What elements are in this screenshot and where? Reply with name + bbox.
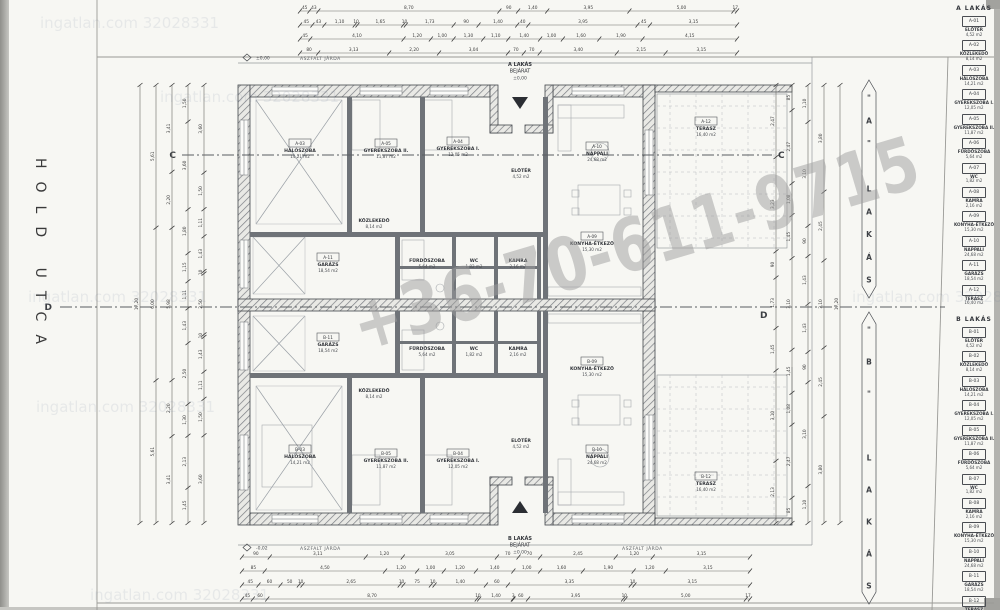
room-code-box: A-01: [962, 16, 986, 27]
room-code-box: B-04: [962, 400, 986, 411]
svg-text:1,40: 1,40: [490, 565, 500, 571]
svg-text:2,45: 2,45: [818, 377, 824, 387]
svg-text:24,68 m2: 24,68 m2: [587, 157, 607, 162]
svg-text:ELŐTÉR: ELŐTÉR: [511, 166, 531, 174]
schedule-item: B-09 KONYHA-ÉTKEZŐ 15,30 m2: [950, 522, 998, 543]
svg-text:4,50: 4,50: [320, 565, 330, 571]
svg-text:1,90: 1,90: [616, 33, 626, 39]
room-code-box: A-10: [962, 236, 986, 247]
entrance-b-label-2: BEJÁRAT: [510, 542, 532, 549]
svg-text:1,40: 1,40: [519, 33, 529, 39]
svg-text:14,21 m2: 14,21 m2: [290, 154, 310, 159]
room-code: A-04: [969, 92, 979, 97]
svg-text:B: B: [866, 358, 872, 367]
svg-text:1,40: 1,40: [528, 5, 538, 11]
svg-text:16,40 m2: 16,40 m2: [696, 132, 716, 137]
svg-text:B-10: B-10: [592, 447, 602, 452]
blueprint-page: C C D D A LAKÁS BEJÁRAT ±0,00 B LAKÁS BE…: [0, 0, 1000, 610]
sidewalk-note-top: ASZFALT JÁRDA: [300, 55, 341, 62]
schedule-item: B-03 HÁLÓSZOBA 14,21 m2: [950, 376, 998, 397]
svg-text:A-04: A-04: [453, 139, 463, 144]
schedule-item: B-11 GARÁZS 18,54 m2: [950, 571, 998, 592]
svg-text:1,10: 1,10: [491, 33, 501, 39]
room-code: A-03: [969, 68, 979, 73]
svg-text:12,05 m2: 12,05 m2: [448, 464, 468, 469]
watermark-site-1: ingatlan.com 32028331: [40, 14, 219, 32]
schedule-item: B-01 ELŐTÉR 4,52 m2: [950, 327, 998, 348]
room-label: KÖZLEKEDŐ8,14 m2: [358, 217, 389, 229]
svg-text:70: 70: [529, 47, 535, 53]
room-area: 5,64 m2: [950, 466, 998, 471]
room-area: 12,05 m2: [950, 417, 998, 422]
svg-text:HÁLÓSZOBA: HÁLÓSZOBA: [284, 453, 316, 460]
svg-text:1,10: 1,10: [802, 500, 808, 510]
room-area: 24,68 m2: [950, 253, 998, 258]
room-label: A-03HÁLÓSZOBA14,21 m2: [284, 139, 316, 159]
svg-text:": ": [867, 390, 871, 399]
room-area: 15,30 m2: [950, 228, 998, 233]
schedule-item: A-10 NAPPALI 24,68 m2: [950, 236, 998, 257]
svg-text:2,45: 2,45: [573, 551, 583, 557]
svg-text:3,10: 3,10: [770, 411, 776, 421]
svg-text:B-09: B-09: [587, 359, 597, 364]
svg-text:16,40 m2: 16,40 m2: [696, 487, 716, 492]
schedule-item: A-02 KÖZLEKEDŐ 8,14 m2: [950, 40, 998, 61]
svg-text:B-05: B-05: [381, 451, 391, 456]
svg-text:3,95: 3,95: [584, 5, 594, 11]
svg-text:B-04: B-04: [453, 451, 463, 456]
room-code-box: A-04: [962, 89, 986, 100]
schedule-list-a: A-01 ELŐTÉR 4,52 m2 A-02 KÖZLEKEDŐ 8,14 …: [950, 16, 998, 309]
svg-text:1,08: 1,08: [786, 404, 792, 414]
svg-text:1,00: 1,00: [522, 565, 532, 571]
room-area: 18,54 m2: [950, 588, 998, 593]
sidewalk-note-bottom-left: ASZFALT JÁRDA: [300, 545, 341, 552]
svg-text:1,15: 1,15: [182, 262, 188, 272]
schedule-item: B-10 NAPPALI 24,68 m2: [950, 547, 998, 568]
room-label: B-11GARÁZS18,54 m2: [317, 333, 339, 353]
svg-text:3,04: 3,04: [469, 47, 479, 53]
svg-text:2,20: 2,20: [409, 47, 419, 53]
svg-text:45: 45: [303, 19, 309, 25]
entrance-a-label-1: A LAKÁS: [508, 61, 532, 68]
svg-text:1,11: 1,11: [198, 218, 204, 228]
svg-text:1,20: 1,20: [455, 565, 465, 571]
room-code-box: A-07: [962, 163, 986, 174]
svg-text:3,11: 3,11: [313, 551, 323, 557]
svg-text:85: 85: [786, 95, 792, 101]
room-code: A-06: [969, 141, 979, 146]
svg-text:90: 90: [802, 364, 808, 370]
svg-text:1,20: 1,20: [629, 551, 639, 557]
svg-text:11,87 m2: 11,87 m2: [376, 464, 396, 469]
svg-text:1,43: 1,43: [182, 321, 188, 331]
svg-text:45: 45: [302, 5, 308, 11]
schedule-item: B-07 WC 1,82 m2: [950, 474, 998, 495]
room-label: B-05GYEREKSZOBA II.11,87 m2: [364, 449, 409, 469]
svg-text:A-05: A-05: [381, 141, 391, 146]
room-code-box: B-07: [962, 474, 986, 485]
svg-text:B-12: B-12: [701, 474, 711, 479]
room-area: 4,52 m2: [950, 33, 998, 38]
watermark-site-5: ingatlan.com 32028331: [36, 398, 215, 416]
room-code: A-01: [969, 19, 979, 24]
svg-text:S: S: [866, 276, 871, 285]
room-label: ELŐTÉR4,52 m2: [511, 436, 531, 449]
svg-text:3,60: 3,60: [182, 160, 188, 170]
svg-text:1,60: 1,60: [557, 565, 567, 571]
room-area: 24,68 m2: [950, 564, 998, 569]
svg-text:17: 17: [732, 5, 738, 11]
svg-text:S: S: [866, 582, 871, 591]
room-area: 18,54 m2: [950, 277, 998, 282]
svg-text:2,47: 2,47: [786, 456, 792, 466]
svg-text:K: K: [866, 230, 873, 239]
svg-text:10: 10: [198, 333, 204, 339]
svg-text:90: 90: [506, 5, 512, 11]
schedule-item: B-04 GYEREKSZOBA I. 12,05 m2: [950, 400, 998, 421]
schedule-item: A-01 ELŐTÉR 4,52 m2: [950, 16, 998, 37]
room-code: B-12: [969, 599, 979, 604]
svg-text:5,00: 5,00: [681, 593, 691, 599]
room-label: B-04GYEREKSZOBA I.12,05 m2: [436, 449, 479, 469]
svg-text:A: A: [866, 486, 872, 495]
room-code: A-02: [969, 43, 979, 48]
svg-text:2,65: 2,65: [346, 579, 356, 585]
room-code-box: B-09: [962, 522, 986, 533]
svg-text:2,15: 2,15: [636, 47, 646, 53]
schedule-list-b: B-01 ELŐTÉR 4,52 m2 B-02 KÖZLEKEDŐ 8,14 …: [950, 327, 998, 610]
svg-text:14,21 m2: 14,21 m2: [290, 460, 310, 465]
svg-text:3,80: 3,80: [818, 133, 824, 143]
svg-text:1,10: 1,10: [335, 19, 345, 25]
svg-text:45: 45: [302, 33, 308, 39]
svg-text:3,60: 3,60: [198, 124, 204, 134]
svg-text:40: 40: [520, 19, 526, 25]
svg-text:85: 85: [786, 507, 792, 513]
entrance-b-label-1: B LAKÁS: [508, 535, 532, 542]
watermark-site-4: ingatlan.com 32028331: [852, 288, 1000, 306]
svg-text:8,14 m2: 8,14 m2: [365, 394, 382, 399]
schedule-item: A-11 GARÁZS 18,54 m2: [950, 260, 998, 281]
svg-text:10: 10: [353, 19, 359, 25]
schedule-title-b: B LAKÁS: [950, 316, 998, 323]
svg-text:3,15: 3,15: [697, 551, 707, 557]
svg-text:L: L: [867, 454, 872, 463]
svg-text:3,10: 3,10: [786, 299, 792, 309]
schedule-item: B-08 KAMRA 2,16 m2: [950, 498, 998, 519]
room-code-box: B-01: [962, 327, 986, 338]
entrance-a-label-2: BEJÁRAT: [510, 68, 532, 75]
svg-text:5,64 m2: 5,64 m2: [418, 352, 435, 357]
svg-text:85: 85: [251, 565, 257, 571]
svg-text:3,40: 3,40: [573, 47, 583, 53]
svg-text:60: 60: [494, 579, 500, 585]
room-code: A-10: [969, 239, 979, 244]
svg-text:17,20: 17,20: [834, 298, 840, 311]
room-code: B-01: [969, 330, 979, 335]
room-area: 14,21 m2: [950, 82, 998, 87]
room-label: KAMRA2,16 m2: [509, 346, 528, 357]
svg-text:3,13: 3,13: [349, 47, 359, 53]
room-code: B-07: [969, 477, 979, 482]
room-area: 1,82 m2: [950, 179, 998, 184]
svg-text:1,40: 1,40: [493, 19, 503, 25]
room-code: B-05: [969, 428, 979, 433]
svg-text:A-11: A-11: [323, 255, 333, 260]
svg-text:3,15: 3,15: [689, 19, 699, 25]
svg-text:1,80: 1,80: [182, 226, 188, 236]
svg-text:2,13: 2,13: [770, 487, 776, 497]
svg-text:8,70: 8,70: [404, 5, 414, 11]
room-code: A-08: [969, 190, 979, 195]
room-code: B-04: [969, 403, 979, 408]
room-label: WC1,82 m2: [465, 346, 482, 357]
svg-text:70: 70: [527, 551, 533, 557]
svg-text:KÖZLEKEDŐ: KÖZLEKEDŐ: [358, 217, 389, 224]
svg-text:3,15: 3,15: [687, 579, 697, 585]
room-code: B-02: [969, 354, 979, 359]
svg-text:B-03: B-03: [295, 447, 305, 452]
watermark-site-2: ingatlan.com 32028331: [160, 88, 339, 106]
room-code-box: B-10: [962, 547, 986, 558]
schedule-item: B-12 TERASZ 16,40 m2: [950, 596, 998, 610]
section-marker-d-right: D: [760, 311, 767, 321]
svg-text:60: 60: [518, 593, 524, 599]
svg-text:1,73: 1,73: [425, 19, 435, 25]
svg-text:11,87 m2: 11,87 m2: [376, 154, 396, 159]
room-code: B-09: [969, 525, 979, 530]
svg-text:3: 3: [512, 593, 515, 599]
svg-text:A-03: A-03: [295, 141, 305, 146]
svg-text:1,20: 1,20: [645, 565, 655, 571]
room-code: B-11: [969, 574, 979, 579]
svg-text:3,95: 3,95: [571, 593, 581, 599]
room-label: KÖZLEKEDŐ8,14 m2: [358, 387, 389, 399]
svg-text:1,45: 1,45: [182, 500, 188, 510]
svg-text:8,70: 8,70: [367, 593, 377, 599]
room-code-box: B-06: [962, 449, 986, 460]
svg-text:18,54 m2: 18,54 m2: [318, 268, 338, 273]
room-code-box: A-06: [962, 138, 986, 149]
room-label: A-12TERASZ16,40 m2: [695, 117, 717, 137]
svg-text:2,20: 2,20: [166, 195, 172, 205]
svg-text:3,15: 3,15: [696, 47, 706, 53]
room-code: A-11: [969, 263, 979, 268]
room-code-box: B-12: [962, 596, 986, 607]
svg-text:3,10: 3,10: [818, 299, 824, 309]
svg-text:75: 75: [414, 579, 420, 585]
room-code-box: B-05: [962, 425, 986, 436]
level-value-bottom: -0,02: [256, 546, 268, 552]
svg-text:8,14 m2: 8,14 m2: [365, 224, 382, 229]
room-code-box: B-08: [962, 498, 986, 509]
room-code-box: B-11: [962, 571, 986, 582]
schedule-item: A-07 WC 1,82 m2: [950, 163, 998, 184]
room-label: A-05GYEREKSZOBA II.11,87 m2: [364, 139, 409, 159]
schedule-item: A-05 GYEREKSZOBA II. 11,87 m2: [950, 114, 998, 135]
svg-text:B-11: B-11: [323, 335, 333, 340]
room-code-box: A-09: [962, 211, 986, 222]
schedule-item: A-04 GYEREKSZOBA I. 12,05 m2: [950, 89, 998, 110]
svg-text:A-10: A-10: [592, 144, 602, 149]
svg-text:Á: Á: [866, 253, 872, 262]
svg-text:3,60: 3,60: [198, 474, 204, 484]
room-area: 12,05 m2: [950, 106, 998, 111]
room-label: A-04GYEREKSZOBA I.12,05 m2: [436, 137, 479, 157]
svg-text:1,45: 1,45: [770, 344, 776, 354]
svg-text:3,10: 3,10: [802, 429, 808, 439]
room-code-box: A-03: [962, 65, 986, 76]
room-code-box: A-11: [962, 260, 986, 271]
entrance-arrow-b: [512, 501, 528, 513]
room-code: B-06: [969, 452, 979, 457]
room-code-box: B-03: [962, 376, 986, 387]
level-marker-top: [243, 54, 251, 61]
room-label: A-10NAPPALI24,68 m2: [586, 142, 608, 162]
room-code-box: A-05: [962, 114, 986, 125]
svg-text:2,47: 2,47: [770, 116, 776, 126]
svg-text:1,43: 1,43: [802, 275, 808, 285]
svg-text:1,60: 1,60: [576, 33, 586, 39]
svg-text:HÁLÓSZOBA: HÁLÓSZOBA: [284, 147, 316, 154]
room-area: 14,21 m2: [950, 393, 998, 398]
room-code: A-09: [969, 214, 979, 219]
svg-text:2,47: 2,47: [786, 142, 792, 152]
svg-text:10: 10: [622, 593, 628, 599]
svg-text:10: 10: [430, 579, 436, 585]
svg-text:4,15: 4,15: [685, 33, 695, 39]
svg-text:18,54 m2: 18,54 m2: [318, 348, 338, 353]
svg-text:10: 10: [399, 579, 405, 585]
room-label: B-09KONYHA-ÉTKEZŐ15,30 m2: [570, 357, 614, 377]
svg-text:1,20: 1,20: [379, 551, 389, 557]
room-area: 2,16 m2: [950, 515, 998, 520]
svg-text:3,41: 3,41: [166, 475, 172, 485]
svg-text:A-12: A-12: [701, 119, 711, 124]
room-code: B-10: [969, 550, 979, 555]
svg-text:4,52 m2: 4,52 m2: [512, 444, 529, 449]
svg-text:70: 70: [513, 47, 519, 53]
svg-text:2,16 m2: 2,16 m2: [509, 352, 526, 357]
room-code-box: B-02: [962, 351, 986, 362]
schedule-item: B-05 GYEREKSZOBA II. 11,87 m2: [950, 425, 998, 446]
svg-text:1,40: 1,40: [455, 579, 465, 585]
schedule-item: A-09 KONYHA-ÉTKEZŐ 15,30 m2: [950, 211, 998, 232]
svg-text:90: 90: [463, 19, 469, 25]
svg-text:": ": [867, 326, 871, 335]
svg-text:2,50: 2,50: [182, 369, 188, 379]
svg-text:1,30: 1,30: [182, 415, 188, 425]
svg-text:10: 10: [198, 269, 204, 275]
svg-text:45: 45: [641, 19, 647, 25]
street-name: HOLD UTCA: [26, 158, 48, 488]
schedule-item: B-06 FÜRDŐSZOBA 5,64 m2: [950, 449, 998, 470]
svg-text:1,40: 1,40: [491, 593, 501, 599]
schedule-title-a: A LAKÁS: [950, 5, 998, 12]
unit-banner: "B" LAKÁS: [862, 312, 876, 604]
svg-text:5,61: 5,61: [150, 447, 156, 457]
level-value-top: ±0,00: [256, 56, 270, 62]
svg-text:5,61: 5,61: [150, 151, 156, 161]
room-area: 8,14 m2: [950, 57, 998, 62]
svg-text:1,73: 1,73: [770, 298, 776, 308]
room-code-box: A-08: [962, 187, 986, 198]
svg-text:10: 10: [475, 593, 481, 599]
svg-text:1,65: 1,65: [376, 19, 386, 25]
room-area: 1,82 m2: [950, 490, 998, 495]
svg-text:4,10: 4,10: [352, 33, 362, 39]
svg-text:1,43: 1,43: [198, 349, 204, 359]
schedule-item: B-02 KÖZLEKEDŐ 8,14 m2: [950, 351, 998, 372]
svg-text:2,13: 2,13: [182, 457, 188, 467]
room-code: A-05: [969, 117, 979, 122]
svg-text:3,15: 3,15: [703, 565, 713, 571]
svg-text:": ": [867, 94, 871, 103]
svg-text:Á: Á: [866, 550, 872, 559]
svg-text:70: 70: [505, 551, 511, 557]
svg-text:GARÁZS: GARÁZS: [317, 341, 338, 348]
svg-text:15,30 m2: 15,30 m2: [582, 372, 602, 377]
entrance-arrow-a: [512, 97, 528, 109]
svg-text:1,30: 1,30: [464, 33, 474, 39]
room-area: 15,30 m2: [950, 539, 998, 544]
svg-text:1,45: 1,45: [786, 366, 792, 376]
svg-text:1,20: 1,20: [412, 33, 422, 39]
room-area: 5,64 m2: [950, 155, 998, 160]
svg-text:17: 17: [745, 593, 751, 599]
entrance-a-level: ±0,00: [513, 76, 527, 82]
svg-text:K: K: [866, 518, 873, 527]
svg-text:1,11: 1,11: [198, 380, 204, 390]
svg-text:43: 43: [311, 5, 317, 11]
svg-text:10: 10: [298, 579, 304, 585]
room-label: ELŐTÉR4,52 m2: [511, 166, 531, 179]
svg-text:KÖZLEKEDŐ: KÖZLEKEDŐ: [358, 387, 389, 394]
svg-text:1,10: 1,10: [802, 98, 808, 108]
room-area: 8,14 m2: [950, 368, 998, 373]
svg-text:4,52 m2: 4,52 m2: [512, 174, 529, 179]
room-label: A-11GARÁZS18,54 m2: [317, 253, 339, 273]
svg-text:3,80: 3,80: [818, 465, 824, 475]
sidewalk-note-bottom-right: ASZFALT JÁRDA: [622, 545, 663, 552]
room-area: 4,52 m2: [950, 344, 998, 349]
svg-text:1,82 m2: 1,82 m2: [465, 352, 482, 357]
room-area: 2,16 m2: [950, 204, 998, 209]
svg-text:3,95: 3,95: [578, 19, 588, 25]
svg-text:5,00: 5,00: [677, 5, 687, 11]
schedule-item: A-03 HÁLÓSZOBA 14,21 m2: [950, 65, 998, 86]
svg-text:1,00: 1,00: [437, 33, 447, 39]
svg-text:10: 10: [630, 579, 636, 585]
svg-text:90: 90: [770, 261, 776, 267]
svg-text:12,05 m2: 12,05 m2: [448, 152, 468, 157]
svg-text:1,20: 1,20: [396, 565, 406, 571]
schedule-item: A-08 KAMRA 2,16 m2: [950, 187, 998, 208]
room-area: 11,87 m2: [950, 131, 998, 136]
svg-text:90: 90: [253, 551, 259, 557]
svg-text:GARÁZS: GARÁZS: [317, 261, 338, 268]
watermark-site-6: ingatlan.com 32028331: [90, 586, 269, 604]
room-code-box: A-02: [962, 40, 986, 51]
svg-text:A: A: [866, 116, 872, 125]
svg-text:1,43: 1,43: [802, 323, 808, 333]
svg-text:3,41: 3,41: [166, 123, 172, 133]
svg-text:80: 80: [306, 47, 312, 53]
schedule-item: A-06 FÜRDŐSZOBA 5,64 m2: [950, 138, 998, 159]
svg-text:1,90: 1,90: [604, 565, 614, 571]
room-area: 11,87 m2: [950, 442, 998, 447]
